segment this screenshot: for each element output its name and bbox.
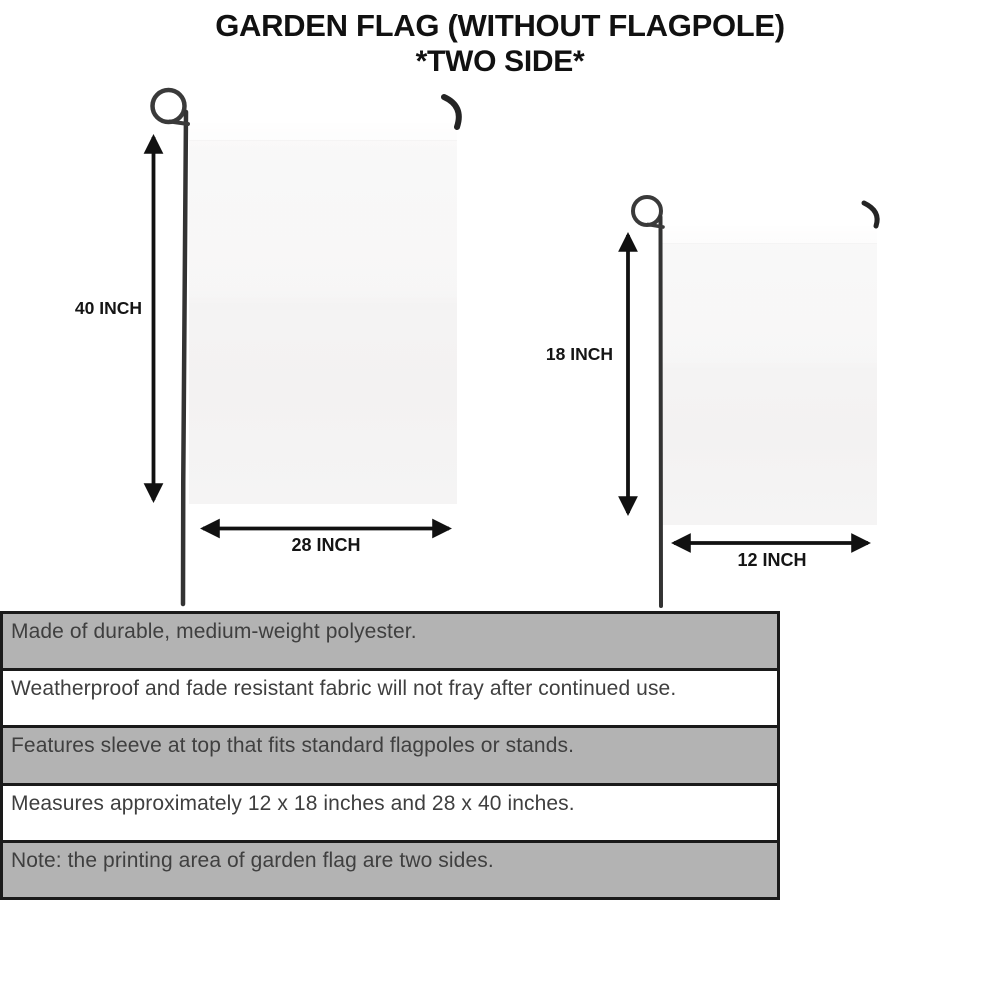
feature-row: Measures approximately 12 x 18 inches an… bbox=[3, 783, 777, 840]
feature-row: Features sleeve at top that fits standar… bbox=[3, 725, 777, 782]
feature-row: Note: the printing area of garden flag a… bbox=[3, 840, 777, 897]
garden-flag-infographic: GARDEN FLAG (WITHOUT FLAGPOLE) *TWO SIDE… bbox=[0, 0, 1000, 1000]
feature-row: Made of durable, medium-weight polyester… bbox=[3, 614, 777, 668]
small-flag-height-label: 18 INCH bbox=[500, 344, 613, 365]
large-flag-hook-icon bbox=[444, 97, 459, 127]
small-flag-width-label: 12 INCH bbox=[672, 550, 872, 571]
large-flag-width-label: 28 INCH bbox=[226, 535, 426, 556]
large-flag-height-label: 40 INCH bbox=[28, 298, 142, 319]
feature-list: Made of durable, medium-weight polyester… bbox=[0, 611, 780, 900]
large-flagpole-icon bbox=[153, 90, 189, 604]
feature-row: Weatherproof and fade resistant fabric w… bbox=[3, 668, 777, 725]
small-flagpole-icon bbox=[633, 197, 663, 606]
small-flag-hook-icon bbox=[864, 203, 877, 226]
